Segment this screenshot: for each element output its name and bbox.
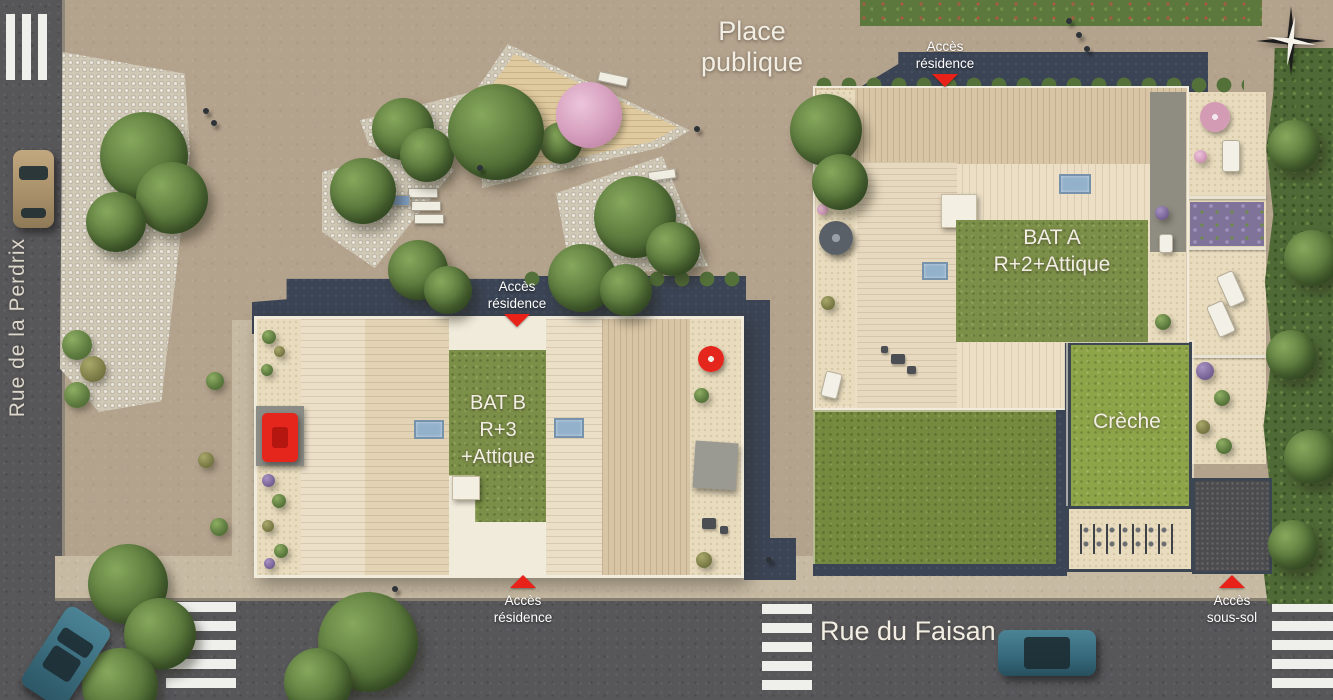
access-label-line1: Accès xyxy=(1214,592,1251,609)
terrace-chair xyxy=(881,346,888,353)
tree xyxy=(790,94,862,166)
batb-roof xyxy=(602,319,690,575)
access-label-line1: Accès xyxy=(927,38,964,55)
shrub xyxy=(206,372,224,390)
compass-rose-icon xyxy=(1256,6,1326,76)
access-label-line2: sous-sol xyxy=(1207,609,1257,626)
access-residence-marker-mid: Accès résidence xyxy=(467,278,567,327)
shrub xyxy=(261,364,273,376)
person xyxy=(392,586,398,592)
access-label-line1: Accès xyxy=(499,278,536,295)
access-label-line2: résidence xyxy=(916,55,975,72)
shrub xyxy=(274,544,288,558)
bench xyxy=(411,201,441,211)
person xyxy=(203,108,209,114)
shrub xyxy=(264,558,275,569)
terrace-table xyxy=(891,354,905,364)
tree xyxy=(600,264,652,316)
red-triangle-arrow-icon xyxy=(510,575,536,588)
person xyxy=(211,120,217,126)
access-label-line2: résidence xyxy=(488,295,547,312)
shrub xyxy=(262,520,274,532)
basement-ramp xyxy=(1192,478,1272,574)
car-windshield xyxy=(19,166,48,180)
shrub xyxy=(1214,390,1230,406)
plaza-label: Place publique xyxy=(672,16,832,78)
access-sous-sol-marker: Accès sous-sol xyxy=(1182,575,1282,626)
tree xyxy=(812,154,868,210)
tree xyxy=(424,266,472,314)
street-label-perdrix: Rue de la Perdrix xyxy=(6,238,30,478)
lawn-bottom-edge xyxy=(813,564,1067,576)
garden-lawn xyxy=(813,410,1067,566)
top-vegetation-strip xyxy=(860,0,1262,26)
crosswalk-top-left xyxy=(6,14,52,80)
building-bat-a-label: BAT A R+2+Attique xyxy=(956,224,1148,278)
tree xyxy=(646,222,700,276)
batb-floors: R+3 xyxy=(428,417,568,444)
bata-floors: R+2+Attique xyxy=(956,251,1148,278)
shrub xyxy=(696,552,712,568)
access-label-line1: Accès xyxy=(505,592,542,609)
skylight xyxy=(922,262,948,280)
shrub xyxy=(1216,438,1232,454)
tree xyxy=(448,84,544,180)
tree xyxy=(1284,230,1333,286)
red-parasol xyxy=(698,346,724,372)
tree xyxy=(400,128,454,182)
street-name-perdrix: Rue de la Perdrix xyxy=(6,238,30,417)
shade-sail xyxy=(692,441,738,491)
bike-rack-row xyxy=(1080,524,1174,554)
shrub xyxy=(272,494,286,508)
skylight xyxy=(1059,174,1091,194)
tree xyxy=(330,158,396,224)
shrub xyxy=(1155,314,1171,330)
shrub xyxy=(274,346,285,357)
person xyxy=(477,165,483,171)
parked-car xyxy=(13,150,54,228)
street-label-faisan: Rue du Faisan xyxy=(820,616,1040,647)
plaza-label-line1: Place xyxy=(672,16,832,47)
bata-right-strip xyxy=(1150,92,1186,252)
bench xyxy=(408,188,438,198)
batb-roof xyxy=(301,319,365,575)
red-triangle-arrow-icon xyxy=(1219,575,1245,588)
red-pergola-inner xyxy=(272,427,288,448)
person xyxy=(694,126,700,132)
dark-parasol xyxy=(819,221,853,255)
terrace-table xyxy=(702,518,716,529)
pink-parasol xyxy=(1200,102,1230,132)
shrub xyxy=(1196,420,1210,434)
shrub xyxy=(262,474,275,487)
access-residence-marker-top: Accès résidence xyxy=(895,38,995,87)
tree xyxy=(1284,430,1333,484)
tree xyxy=(86,192,146,252)
creche-name: Crèche xyxy=(1068,408,1186,435)
person xyxy=(1084,46,1090,52)
shrub xyxy=(262,330,276,344)
lounger xyxy=(1159,234,1173,253)
flowering-tree xyxy=(556,82,622,148)
shrub xyxy=(80,356,106,382)
site-plan-aerial-view: BAT B R+3 +Attique BAT A R+2+Attique xyxy=(0,0,1333,700)
red-triangle-arrow-icon xyxy=(504,314,530,327)
shrub xyxy=(62,330,92,360)
batb-name: BAT B xyxy=(428,390,568,417)
car-rear-window xyxy=(21,208,46,218)
red-triangle-arrow-icon xyxy=(932,74,958,87)
batb-attic: +Attique xyxy=(428,444,568,471)
access-residence-marker-bottom: Accès résidence xyxy=(473,575,573,626)
bench xyxy=(414,214,444,224)
shrub xyxy=(821,296,835,310)
bata-name: BAT A xyxy=(956,224,1148,251)
street-name-faisan: Rue du Faisan xyxy=(820,616,996,646)
person xyxy=(766,557,772,563)
person xyxy=(1066,18,1072,24)
shrub xyxy=(64,382,90,408)
access-label-line2: résidence xyxy=(494,609,553,626)
flower-shrub xyxy=(1194,150,1207,163)
terrace-divider xyxy=(1188,247,1266,250)
shrub xyxy=(198,452,214,468)
crosswalk-bottom-center xyxy=(762,604,812,690)
shrub xyxy=(1155,206,1169,220)
bata-roof-upper xyxy=(815,88,1187,164)
person xyxy=(1076,32,1082,38)
roof-access-box xyxy=(452,476,480,500)
tree xyxy=(1266,330,1316,380)
shrub xyxy=(1196,362,1214,380)
batb-left-path xyxy=(232,320,254,576)
tree xyxy=(1268,520,1318,570)
terrace-chair xyxy=(907,366,916,374)
shrub xyxy=(694,388,709,403)
shrub xyxy=(210,518,228,536)
creche-label: Crèche xyxy=(1068,408,1186,435)
terrace-divider xyxy=(1188,355,1266,358)
tree xyxy=(136,162,208,234)
terrace-chair xyxy=(720,526,728,534)
plaza-label-line2: publique xyxy=(672,47,832,78)
flower-bed xyxy=(1190,202,1264,246)
tree xyxy=(1268,120,1320,172)
terrace-table xyxy=(1222,140,1240,172)
building-bat-b-label: BAT B R+3 +Attique xyxy=(428,390,568,471)
terrace-divider xyxy=(1188,196,1266,199)
